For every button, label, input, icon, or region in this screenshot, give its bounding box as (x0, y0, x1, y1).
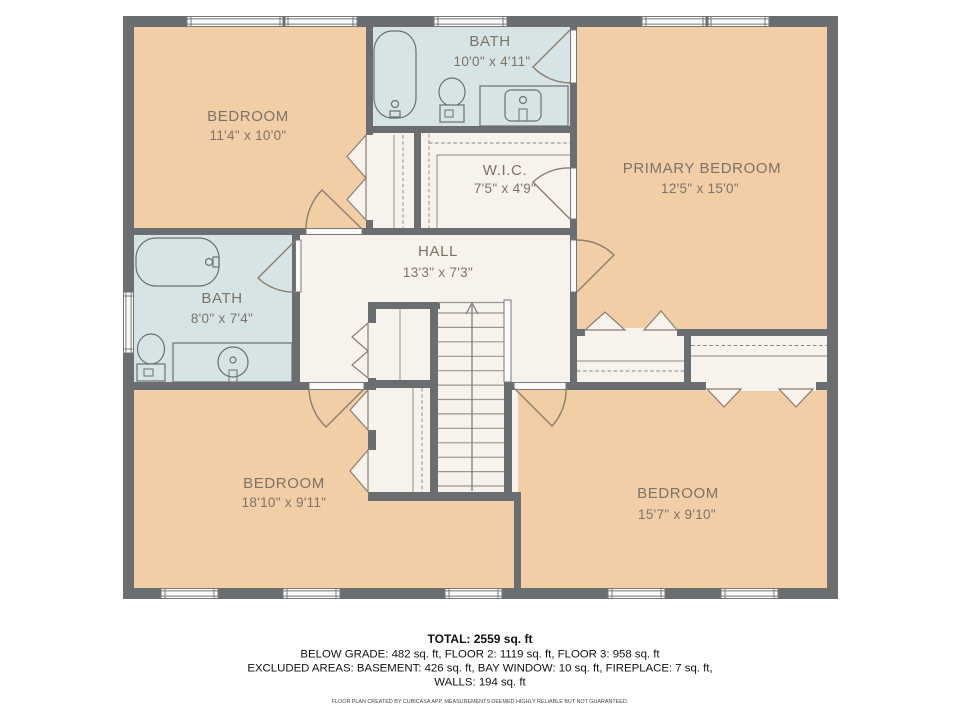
svg-text:WALLS: 194 sq. ft: WALLS: 194 sq. ft (434, 677, 526, 689)
svg-text:7'5" x 4'9": 7'5" x 4'9" (474, 181, 536, 196)
svg-text:12'5" x 15'0": 12'5" x 15'0" (661, 181, 739, 196)
svg-text:18'10" x 9'11": 18'10" x 9'11" (242, 495, 327, 510)
svg-text:BATH: BATH (201, 290, 242, 307)
svg-text:13'3" x 7'3": 13'3" x 7'3" (403, 265, 473, 280)
svg-text:FLOOR PLAN CREATED BY CUBICASA: FLOOR PLAN CREATED BY CUBICASA APP. MEAS… (332, 699, 628, 705)
svg-text:BEDROOM: BEDROOM (637, 485, 719, 502)
svg-text:PRIMARY BEDROOM: PRIMARY BEDROOM (623, 160, 781, 177)
svg-text:TOTAL: 2559 sq. ft: TOTAL: 2559 sq. ft (428, 632, 533, 646)
svg-text:8'0" x 7'4": 8'0" x 7'4" (191, 311, 253, 326)
svg-text:BATH: BATH (469, 33, 510, 50)
svg-text:BEDROOM: BEDROOM (207, 108, 289, 125)
svg-text:11'4" x 10'0": 11'4" x 10'0" (210, 128, 287, 143)
svg-text:W.I.C.: W.I.C. (483, 162, 527, 179)
svg-text:15'7" x 9'10": 15'7" x 9'10" (638, 507, 716, 522)
svg-text:10'0" x 4'11": 10'0" x 4'11" (454, 54, 531, 69)
svg-text:BEDROOM: BEDROOM (243, 475, 325, 492)
svg-text:BELOW GRADE: 482 sq. ft, FLOOR: BELOW GRADE: 482 sq. ft, FLOOR 2: 1119 s… (300, 649, 660, 661)
svg-text:EXCLUDED AREAS: BASEMENT: 426: EXCLUDED AREAS: BASEMENT: 426 sq. ft, BA… (247, 663, 712, 675)
svg-text:HALL: HALL (418, 243, 458, 260)
